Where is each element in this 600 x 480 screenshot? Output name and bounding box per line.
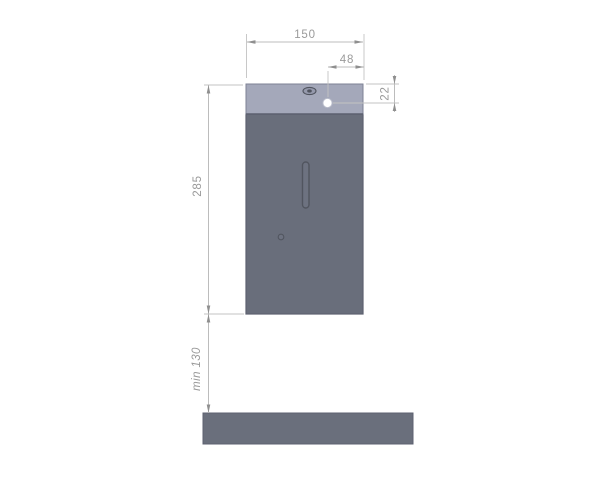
lock-oval-center-icon (307, 89, 312, 92)
dimension-overall-height: 285 (192, 85, 244, 314)
arrow-left-icon (247, 40, 256, 44)
indicator-hole (278, 234, 284, 240)
arrow-right-icon (355, 40, 364, 44)
arrow-down-icon (207, 405, 211, 414)
dispenser-body (246, 114, 363, 314)
arrow-up-icon (207, 85, 211, 94)
sight-window-slot (303, 162, 310, 208)
dimension-label-clearance: min 130 (191, 347, 203, 391)
dimension-label-hole-offset-y: 22 (380, 86, 392, 100)
dispenser-dimension-drawing: 150 48 22 285 (0, 0, 600, 480)
shelf-bar (203, 413, 413, 444)
dimension-label-hole-offset-x: 48 (340, 54, 354, 66)
arrow-left-icon (328, 65, 337, 69)
dimension-bottom-clearance: min 130 (191, 314, 210, 413)
dimension-label-width: 150 (294, 29, 316, 41)
arrow-up-icon (393, 103, 397, 111)
mounting-hole (323, 98, 332, 107)
arrow-down-icon (393, 76, 397, 84)
arrow-right-icon (356, 65, 365, 69)
arrow-up-icon (207, 314, 211, 323)
dimension-label-height: 285 (192, 175, 204, 197)
arrow-down-icon (207, 306, 211, 315)
technical-drawing-canvas: 150 48 22 285 (0, 0, 600, 480)
